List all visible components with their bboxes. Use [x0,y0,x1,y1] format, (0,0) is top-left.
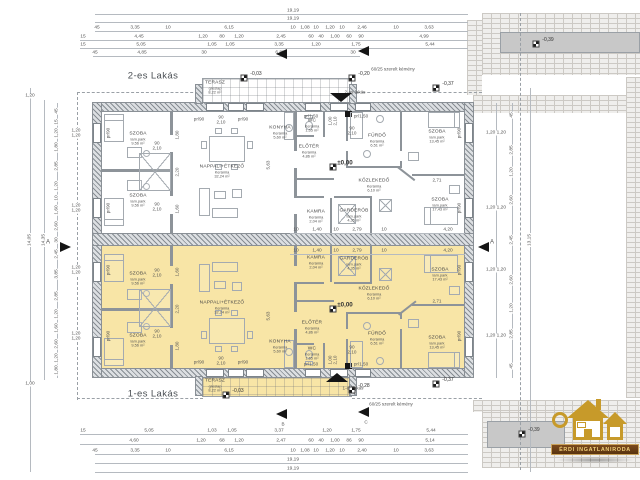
dimension-label: 2,85 [510,328,515,339]
annotation-label: 90 2,10 [153,329,162,340]
dimension-label: 60 [346,35,351,40]
dimension-label: 1,20 [55,127,60,138]
furniture-shape [231,346,238,352]
dimension-label: 3,35 [130,26,139,31]
dimension-label: 4,99 [419,35,428,40]
dimension-label: 2,40 [357,449,366,454]
dimension-label: 1,20 [325,449,334,454]
dimension-label: 15 [80,35,85,40]
room-label: SZOBAlam.park17,43 m² [431,197,448,212]
partition-wall [323,111,325,137]
room-label: SZOBAlam.park17,43 m² [431,267,448,282]
logo-chimney-icon [596,399,601,410]
dimension-label: 45 [92,51,97,56]
dimension-label: 2,45 [55,248,60,259]
room-label: NAPPALI+ÉTKEZŐKerámia32,24 m² [200,164,245,179]
room-label-line: 8,22 m² [205,91,225,96]
floor-plan-canvas: 2-es Lakás 1-es Lakás ÉRDI INGATLANIRODA… [0,0,640,480]
room-label-line: 9,56 m² [129,282,146,287]
dimension-label: 19,19 [287,458,299,463]
annotation-label: pr/90 [238,359,248,364]
partition-wall [294,282,324,284]
furniture-shape [424,207,431,225]
dimension-label: 1,00 [330,439,339,444]
furniture-shape [199,188,210,216]
annotation-label: 1,00 2,10 [328,356,339,365]
dimension-label: 1,20 [325,26,334,31]
annotation-label: pr/90 [456,331,461,341]
dimension-label: 4,20 [443,249,452,254]
dimension-label: 2,45 [276,35,285,40]
dimension-label: 1,05 [207,43,216,48]
furniture-shape [104,359,124,366]
section-marker-icon [478,242,489,252]
dimension-line [95,22,468,23]
annotation-label: 90 2,10 [153,141,162,152]
level-marker-icon [520,432,525,437]
dimension-label: 10 [339,449,344,454]
partition-wall [294,111,297,151]
dimension-label: 2,47 [276,439,285,444]
level-value: -0,37 [442,81,453,87]
partition-wall [294,178,334,180]
partition-wall [400,329,402,369]
dimension-label: 1,08 [300,449,309,454]
room-label-line: 4,86 m² [299,155,319,160]
dimension-label: 4,45 [134,35,143,40]
partition-wall [294,196,324,198]
dimension-label: 6,15 [224,449,233,454]
dimension-line [80,40,468,41]
annotation-label: 90 2,10 [153,268,162,279]
annotation-label: 1,20 1,20 [71,331,82,342]
dimension-label: 1,00 [330,35,339,40]
dimension-label: 5,44 [426,429,435,434]
furniture-shape [139,289,171,327]
dimension-label: 45 [94,26,99,31]
property-dashed-line [77,92,203,93]
room-label-line: 6,10 m² [358,297,389,302]
partition-wall [294,343,314,345]
room-label-line: 6,51 m² [368,144,386,149]
annotation-label: pr/90 [456,128,461,138]
room-label: KONYHAKerámia5,60 m² [269,125,290,140]
dimension-label: 15 [55,118,60,125]
room-label: KAMRAKerámia2,04 m² [307,255,325,270]
dimension-label: 1,20 1,20 [485,206,507,211]
room-label: SZOBAlam.park9,56 m² [129,333,146,348]
window-opening [246,369,264,377]
dimension-label: 1,20 [510,302,515,313]
window-opening [305,103,321,111]
annotation-label: 90 2,10 [348,126,357,137]
partition-wall [294,282,297,312]
annotation-label: 60/25 szerelt kémény [369,401,413,406]
dimension-label: 3,37 [274,429,283,434]
level-marker-icon [350,76,355,81]
dimension-label: 10 [393,449,398,454]
dimension-label: 2,79 [352,249,361,254]
annotation-label: pr/90 [194,116,204,121]
annotation-label: pr/90 [105,128,110,138]
wall-segment [93,234,473,245]
section-marker-icon [358,407,369,417]
furniture-shape [408,152,419,161]
dimension-label: 10 [339,26,344,31]
room-label: SZOBAlam.park9,56 m² [129,193,146,208]
furniture-shape [201,331,207,339]
dimension-label: 10 [333,228,338,233]
partition-wall [412,304,465,306]
logo-shadow [555,457,635,463]
annotation-label: B [281,421,284,426]
dimension-label: 15 [80,429,85,434]
dimension-label: 13,15 [528,233,533,247]
dimension-label: 1,20 1,20 [485,268,507,273]
wall-segment [196,377,202,395]
dimension-label: 19,19 [287,17,299,22]
room-label: ELŐTÉRKerámia4,86 m² [299,144,319,159]
dimension-label: 19,19 [287,467,299,472]
annotation-label: A [46,240,50,247]
window-opening [93,337,101,357]
furniture-shape [454,112,460,128]
dimension-label: 1,20 1,20 [485,334,507,339]
furniture-shape [379,199,392,212]
dimension-label: 80 [219,35,224,40]
dimension-label: 3,35 [130,449,139,454]
partition-wall [346,312,348,329]
dimension-line [95,14,468,15]
furniture-shape [104,254,124,261]
room-label: SZOBAlam.park9,56 m² [129,271,146,286]
annotation-label: C [364,419,367,424]
logo-window-icon [577,422,586,428]
room-label-line: 2,04 m² [307,266,325,271]
room-label: FÜRDŐKerámia6,51 m² [368,133,386,148]
paved-area [626,77,640,398]
room-label: SZOBAlam.park13,45 m² [428,129,445,144]
furniture-shape [454,352,460,368]
annotation-label: 2,20 [174,168,179,177]
annotation-label: pr/90 [194,359,204,364]
window-opening [305,369,321,377]
dimension-label: 30 [201,51,206,56]
dimension-label: 5,05 [144,429,153,434]
dimension-label: 5,14 [425,439,434,444]
furniture-shape [376,115,384,123]
dimension-label: 30 [55,236,60,243]
dimension-label: 2,45 [510,234,515,245]
dimension-label: 2,85 [510,144,515,155]
annotation-label: pr/90 [456,265,461,275]
level-marker-icon [534,42,539,47]
level-value: ±0,00 [337,302,352,309]
dimension-label: 5,05 [136,43,145,48]
level-value: -0,28 [358,383,369,389]
room-label-line: 4,35 m² [339,219,368,224]
window-opening [206,103,224,111]
annotation-label: 1,60 [174,205,179,214]
dimension-label: 68 [219,439,224,444]
dimension-label: 1,20 [198,35,207,40]
agency-logo: ÉRDI INGATLANIRODA [551,396,640,468]
dimension-label: 30 [350,51,355,56]
dimension-line [80,434,468,435]
logo-sun-icon [552,412,568,428]
dimension-label: 10 [393,26,398,31]
room-label-line: 9,56 m² [129,204,146,209]
furniture-shape [212,262,238,272]
annotation-label: pr/90 [456,203,461,213]
furniture-shape [104,114,124,121]
dimension-label: 3,63 [424,449,433,454]
dimension-label: 2,85 [55,290,60,301]
window-opening [206,369,224,377]
furniture-shape [449,286,460,295]
furniture-shape [449,185,460,194]
dimension-line [95,463,468,464]
partition-wall [334,196,372,198]
section-marker-icon [276,409,287,419]
furniture-shape [363,322,371,330]
dimension-label: 45 [92,449,97,454]
dimension-label: 10 [290,449,295,454]
level-marker-icon [434,86,439,91]
partition-wall [294,168,297,198]
furniture-shape [209,318,245,344]
room-label-line: 4,35 m² [339,267,368,272]
dimension-label: 10 [165,449,170,454]
level-value: -0,03 [232,388,243,394]
logo-banner: ÉRDI INGATLANIRODA [551,444,639,455]
room-label: FÜRDŐKerámia6,51 m² [368,331,386,346]
room-label: GARDERÓBlam.park4,35 m² [339,256,368,271]
room-label-line: 32,24 m² [200,311,245,316]
dimension-label: 2,60 [510,194,515,205]
furniture-shape [139,153,171,191]
annotation-label: 90 2,10 [217,356,226,367]
furniture-shape [214,281,226,289]
dimension-label: 1,20 1,20 [485,131,507,136]
dimension-label: 2,60 [510,274,515,285]
wall-segment [196,85,202,103]
logo-small-house-body-icon [607,424,623,440]
partition-wall [323,343,325,369]
level-marker-icon [242,76,247,81]
partition-wall [170,111,173,135]
dimension-label: 1,20 [234,35,243,40]
furniture-shape [379,268,392,281]
dimension-label: 10 [313,449,318,454]
level-marker-icon [331,307,336,312]
room-label-line: 2,04 m² [307,220,325,225]
partition-wall [346,312,402,314]
dimension-label: 1,60 [55,322,60,333]
dimension-label: 10 [381,249,386,254]
partition-wall [370,198,372,235]
annotation-label: 60/25 szerelt kémény [371,66,415,71]
paved-area [473,95,640,113]
dimension-label: 2,60 [55,338,60,349]
dimension-label: 45 [510,111,515,118]
entrance-arrow-icon [330,93,352,102]
furniture-shape [215,346,222,352]
furniture-shape [363,150,371,158]
furniture-shape [231,128,238,134]
partition-wall [294,300,334,302]
dimension-label: 4,60 [129,439,138,444]
dimension-label: 3,63 [424,26,433,31]
dimension-label: 10 [313,26,318,31]
dimension-label: 2,60 [55,220,60,231]
level-value: -0,39 [542,37,553,43]
room-label-line: 6,10 m² [358,189,389,194]
room-label-line: 9,56 m² [129,142,146,147]
room-label: KÖZLEKEDŐKerámia6,10 m² [358,286,389,301]
room-label: TERASZgreslap8,22 m² [205,80,225,95]
room-label-line: 6,51 m² [368,342,386,347]
dimension-label: 40 [318,439,323,444]
annotation-label: 90 2,10 [153,202,162,213]
room-label-line: 9,56 m² [129,344,146,349]
dimension-label: 1,03 [207,429,216,434]
partition-wall [330,198,332,235]
dimension-label: 2,46 [357,26,366,31]
property-dashed-line [77,398,203,399]
level-value: -0,03 [250,71,261,77]
furniture-shape [232,189,242,198]
annotation-label: pr/1,50 [354,361,368,366]
room-label-line: 13,45 m² [428,140,445,145]
section-marker-icon [60,242,71,252]
window-opening [228,369,244,377]
dimension-label: 1,20 [234,439,243,444]
dimension-label: 19,19 [287,9,299,14]
property-dashed-line [352,398,482,399]
furniture-shape [247,331,253,339]
furniture-shape [209,136,245,162]
logo-small-house-roof-icon [603,412,627,424]
room-label: KAMRAKerámia2,04 m² [307,209,325,224]
furniture-shape [376,357,384,365]
annotation-label: 90 2,10 [348,345,357,356]
dimension-label: 3,85 [55,268,60,279]
section-marker-icon [358,46,369,56]
furniture-shape [201,141,207,149]
dimension-line [530,88,531,472]
level-value: -0,20 [358,71,369,77]
room-label-line: 5,60 m² [269,350,290,355]
partition-wall [400,111,402,151]
dimension-label: 4,20 [443,228,452,233]
window-opening [465,337,473,357]
dimension-line [80,444,468,445]
annotation-label: A [490,240,494,247]
dimension-label: 10 [290,26,295,31]
dimension-label: 4,85 [137,51,146,56]
dimension-label: 60 [308,439,313,444]
dimension-label: 10 [55,194,60,201]
dimension-line [290,233,465,234]
furniture-shape [199,264,210,292]
dimension-label: 45 [55,107,60,114]
furniture-shape [408,319,419,328]
level-marker-icon [350,388,355,393]
dimension-label: 1,20 [55,352,60,363]
level-marker-icon [224,393,229,398]
annotation-label: 2,71 [433,298,442,303]
window-opening [355,103,371,111]
partition-wall [294,329,297,369]
dimension-label: 15 [80,43,85,48]
annotation-label: 1,20 1,20 [71,265,82,276]
window-opening [228,103,244,111]
dimension-label: 1,40 [312,249,321,254]
room-label: ELŐTÉRKerámia4,86 m² [302,320,322,335]
furniture-shape [212,208,238,218]
dimension-label: 90 [358,439,363,444]
dimension-label: 90 [358,35,363,40]
room-label-line: 1,65 m² [305,129,320,134]
annotation-label: pr/1,50 [354,113,368,118]
dimension-line [95,31,468,32]
dimension-label: 10 [333,249,338,254]
room-label-line: 8,22 m² [205,389,225,394]
dimension-label: 1,05 [225,43,234,48]
dimension-label: 1,20 [55,308,60,319]
room-label-line: 5,60 m² [269,136,290,141]
window-opening [465,262,473,282]
room-label-line: 1,65 m² [305,357,320,362]
room-label: KÖZLEKEDŐKerámia6,10 m² [358,178,389,193]
furniture-shape [215,128,222,134]
window-opening [93,198,101,218]
annotation-label: pr/90 [105,265,110,275]
dimension-line [80,48,468,49]
dimension-label: 1,80 [55,141,60,152]
dimension-label: 1,60 [55,204,60,215]
level-value: -0,39 [528,427,539,433]
dimension-label: 40 [318,35,323,40]
dimension-label: 1,20 [196,439,205,444]
paved-area [467,20,482,95]
dimension-label: 1,20 [55,180,60,191]
dimension-label: 2,79 [352,228,361,233]
furniture-shape [232,282,242,291]
annotation-label: pr/1,50 [304,361,318,366]
partition-wall [170,345,173,369]
window-opening [93,262,101,282]
dimension-label: 45 [510,362,515,369]
entrance-arrow-icon [326,373,348,382]
level-marker-icon [331,165,336,170]
annotation-label: 5,63 [265,312,270,321]
dimension-label: 2,85 [55,160,60,171]
room-label-line: 17,43 m² [431,278,448,283]
dimension-label: 3,35 [274,43,283,48]
window-opening [93,123,101,143]
room-label-line: 13,45 m² [428,346,445,351]
room-label: NAPPALI+ÉTKEZŐKerámia32,24 m² [200,300,245,315]
dimension-line [30,88,31,472]
dimension-line [95,454,468,455]
furniture-shape [247,141,253,149]
annotation-label: 1,80 [174,131,179,140]
dimension-label: 5,44 [425,43,434,48]
furniture-shape [214,191,226,199]
room-label-line: 4,86 m² [302,331,322,336]
